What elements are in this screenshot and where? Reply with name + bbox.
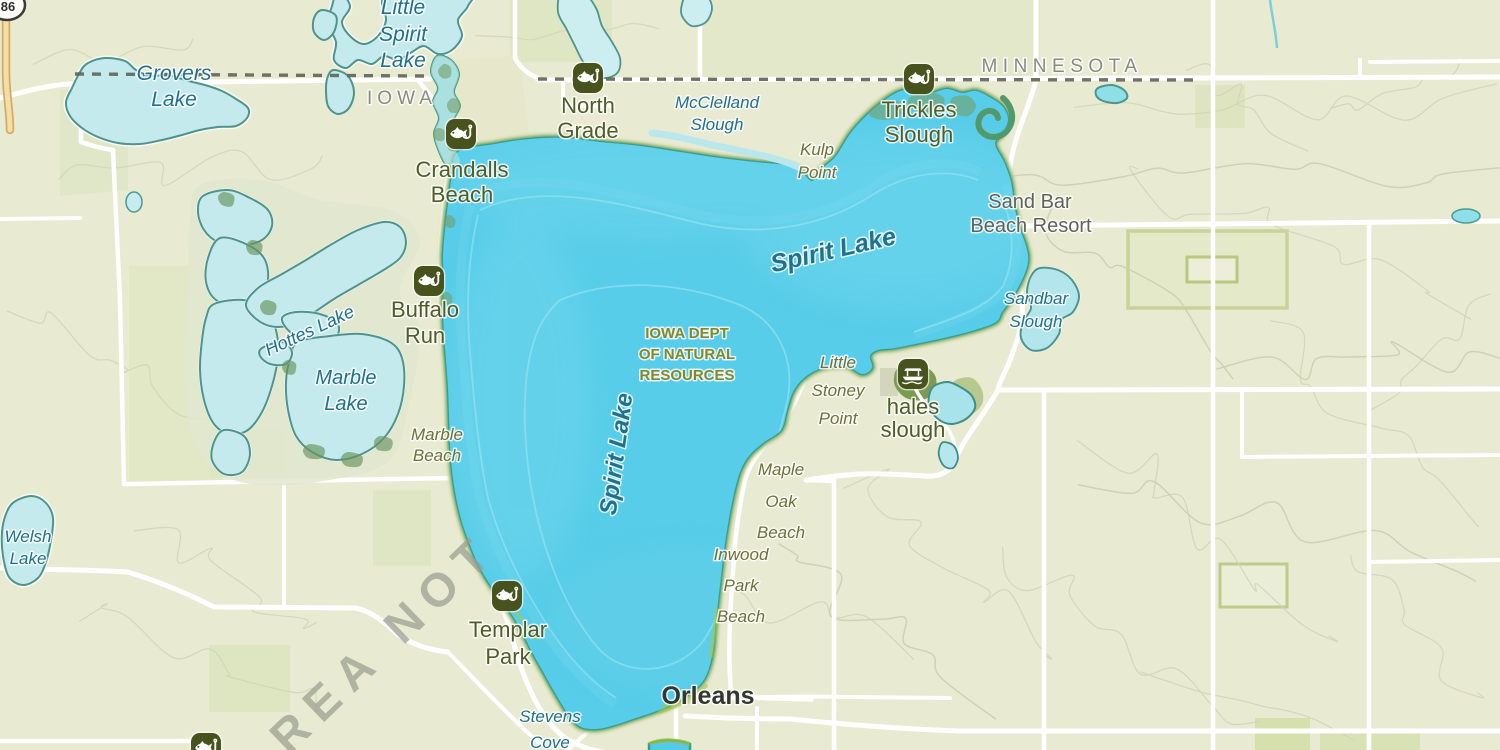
svg-text:Spirit: Spirit <box>379 23 428 46</box>
svg-text:Point: Point <box>819 409 859 428</box>
svg-text:Marble: Marble <box>411 425 463 444</box>
svg-text:Orleans: Orleans <box>661 682 754 710</box>
svg-text:Crandalls: Crandalls <box>416 157 509 182</box>
svg-text:Beach: Beach <box>717 607 765 626</box>
svg-text:Lake: Lake <box>324 393 367 415</box>
svg-text:Beach: Beach <box>431 182 493 207</box>
svg-text:Slough: Slough <box>885 122 954 147</box>
svg-text:Lake: Lake <box>151 88 197 111</box>
svg-text:IOWA: IOWA <box>367 88 437 109</box>
svg-text:Welsh: Welsh <box>5 527 52 546</box>
svg-text:Stoney: Stoney <box>812 381 866 400</box>
svg-text:slough: slough <box>881 417 946 442</box>
svg-text:Trickles: Trickles <box>882 97 957 122</box>
svg-text:Grade: Grade <box>557 118 618 143</box>
svg-text:Kulp: Kulp <box>800 140 834 159</box>
svg-text:Slough: Slough <box>1010 312 1063 331</box>
svg-text:Cove: Cove <box>530 733 570 750</box>
svg-text:Point: Point <box>798 163 838 182</box>
svg-text:Little: Little <box>820 353 856 372</box>
svg-text:Marble: Marble <box>315 367 376 389</box>
svg-text:Stevens: Stevens <box>519 707 581 726</box>
svg-text:Oak: Oak <box>765 492 798 511</box>
svg-text:McClelland: McClelland <box>675 93 760 112</box>
svg-text:MINNESOTA: MINNESOTA <box>981 56 1142 77</box>
svg-text:Beach: Beach <box>413 446 461 465</box>
svg-text:North: North <box>561 93 615 118</box>
svg-text:Sand Bar: Sand Bar <box>988 191 1072 213</box>
svg-text:Buffalo: Buffalo <box>391 297 459 322</box>
svg-text:Sandbar: Sandbar <box>1004 289 1070 308</box>
svg-text:OF NATURAL: OF NATURAL <box>639 346 735 363</box>
svg-text:Lake: Lake <box>380 49 426 72</box>
svg-text:Templar: Templar <box>469 617 547 642</box>
svg-text:Run: Run <box>405 323 445 348</box>
svg-text:IOWA DEPT: IOWA DEPT <box>645 325 729 342</box>
svg-text:Park: Park <box>724 576 760 595</box>
svg-text:hales: hales <box>887 394 940 419</box>
svg-text:Grovers: Grovers <box>137 62 212 85</box>
svg-text:Beach: Beach <box>757 523 805 542</box>
svg-text:Maple: Maple <box>758 460 804 479</box>
svg-text:86: 86 <box>1 0 15 14</box>
svg-text:RESOURCES: RESOURCES <box>639 367 734 384</box>
svg-text:Slough: Slough <box>691 115 744 134</box>
svg-text:Inwood: Inwood <box>714 545 769 564</box>
svg-text:Park: Park <box>485 644 531 669</box>
svg-text:Lake: Lake <box>10 549 47 568</box>
svg-text:Beach Resort: Beach Resort <box>970 215 1092 237</box>
svg-text:Little: Little <box>381 0 425 19</box>
